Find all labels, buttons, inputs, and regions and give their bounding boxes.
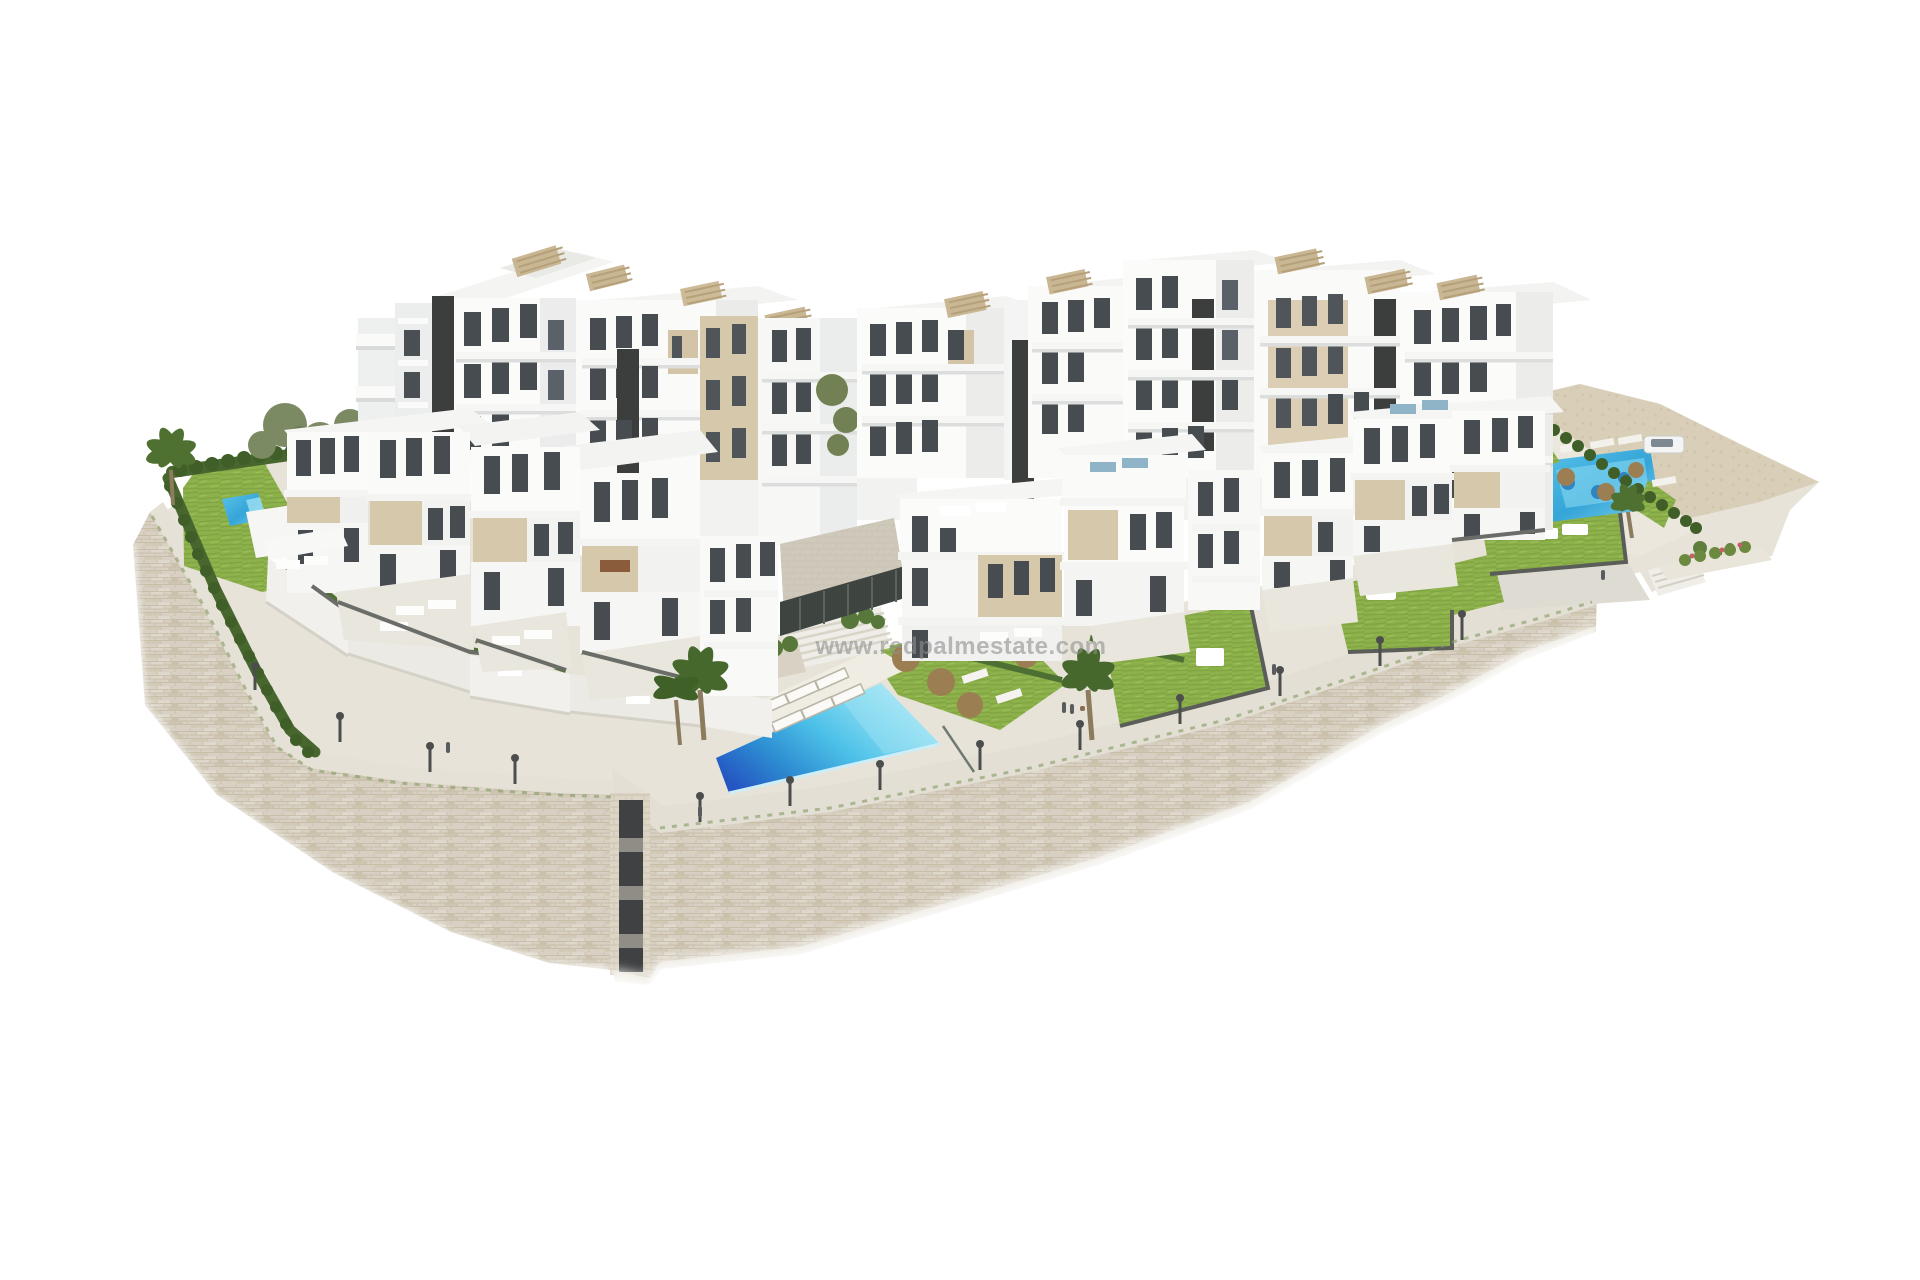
svg-text:www.redpalmestate.com: www.redpalmestate.com bbox=[814, 633, 1106, 660]
